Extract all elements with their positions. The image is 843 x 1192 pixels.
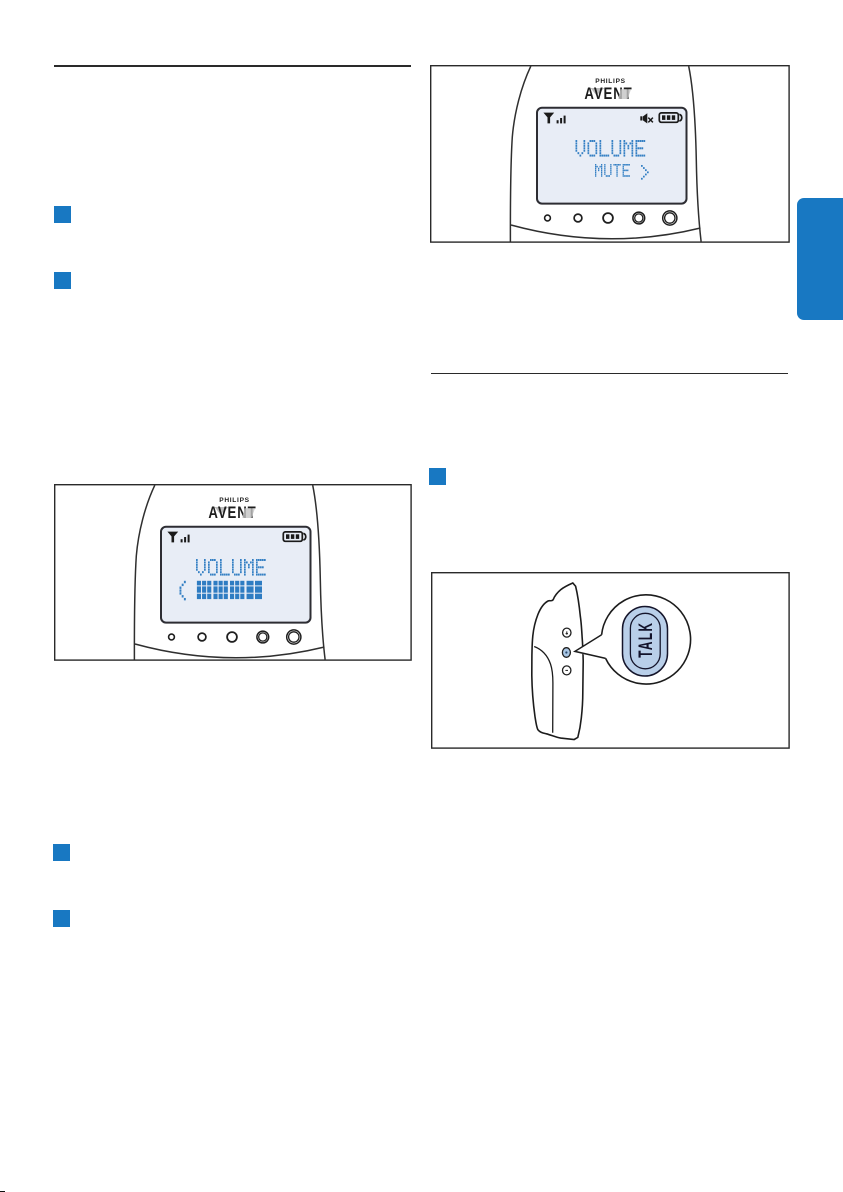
svg-text:TALK: TALK (636, 621, 656, 657)
